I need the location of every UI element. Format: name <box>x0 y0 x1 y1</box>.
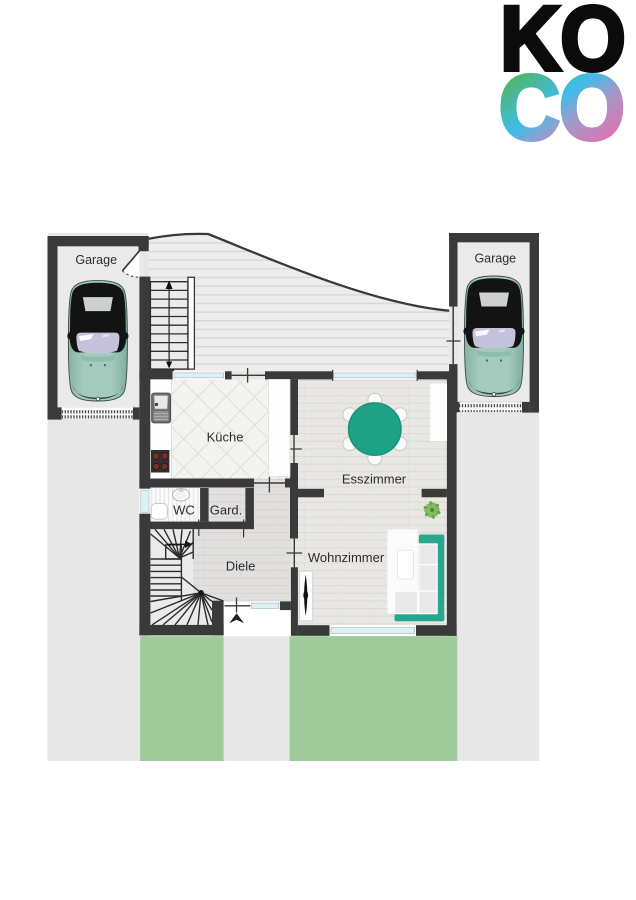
svg-text:Gard.: Gard. <box>210 502 243 517</box>
svg-text:Garage: Garage <box>474 251 516 265</box>
svg-text:Wohnzimmer: Wohnzimmer <box>308 550 385 565</box>
svg-text:Küche: Küche <box>207 429 244 444</box>
svg-text:Esszimmer: Esszimmer <box>342 472 407 487</box>
svg-text:CO: CO <box>499 56 624 159</box>
svg-text:Garage: Garage <box>75 253 117 267</box>
svg-text:Diele: Diele <box>226 558 256 573</box>
svg-text:WC: WC <box>173 502 195 517</box>
